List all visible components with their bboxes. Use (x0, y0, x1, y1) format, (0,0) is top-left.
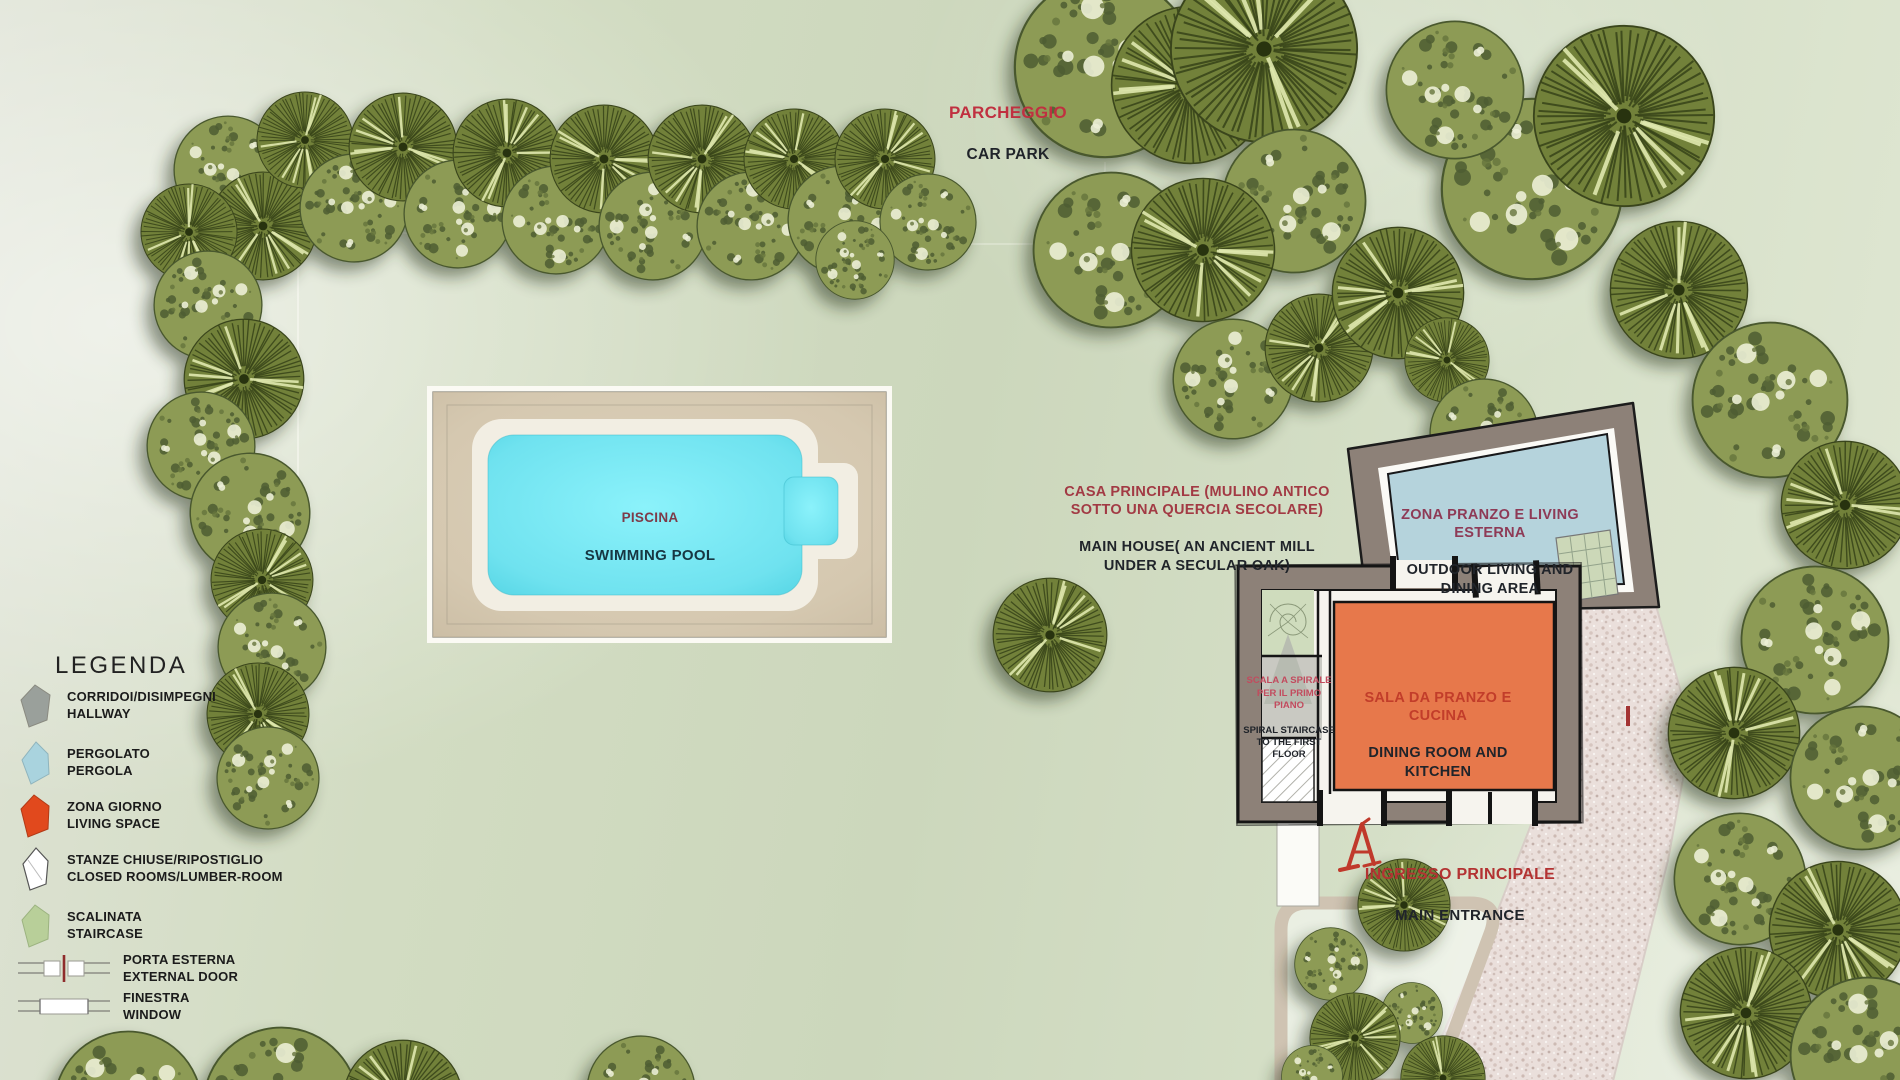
site-plan: PARCHEGGIO CAR PARK PISCINA SWIMMING POO… (0, 0, 1900, 1080)
label-sala-it: SALA DA PRANZO E CUCINA (1364, 689, 1511, 726)
legend-window-it: FINESTRA (123, 990, 190, 1007)
legend-window-en: WINDOW (123, 1007, 190, 1024)
label-parcheggio: PARCHEGGIO CAR PARK (949, 80, 1067, 187)
legend-closed-en: CLOSED ROOMS/LUMBER-ROOM (67, 869, 283, 886)
pergola-swatch-icon (18, 740, 54, 786)
entrance-walkway (1277, 820, 1319, 906)
label-parcheggio-it: PARCHEGGIO (949, 102, 1067, 124)
red-tick-marker (1626, 706, 1630, 726)
label-sala-pranzo: SALA DA PRANZO E CUCINA DINING ROOM AND … (1364, 670, 1511, 800)
legend-door-en: EXTERNAL DOOR (123, 969, 238, 986)
external-door-symbol-icon (18, 954, 110, 984)
label-zona-pranzo: ZONA PRANZO E LIVING ESTERNA OUTDOOR LIV… (1401, 487, 1579, 617)
legend-item-hallway: CORRIDOI/DISIMPEGNIHALLWAY (18, 683, 216, 729)
label-casa-it: CASA PRINCIPALE (MULINO ANTICO SOTTO UNA… (1064, 483, 1329, 520)
window-symbol-icon (18, 992, 110, 1022)
hallway-swatch-icon (18, 683, 54, 729)
legend-pergola-it: PERGOLATO (67, 746, 150, 763)
legend-living-it: ZONA GIORNO (67, 799, 162, 816)
closed-rooms-swatch-icon (18, 846, 54, 892)
legend-item-external-door: PORTA ESTERNAEXTERNAL DOOR (18, 952, 238, 986)
label-parcheggio-en: CAR PARK (949, 145, 1067, 165)
label-ingresso-it: INGRESSO PRINCIPALE (1365, 865, 1555, 885)
legend-item-closed-rooms: STANZE CHIUSE/RIPOSTIGLIOCLOSED ROOMS/LU… (18, 846, 283, 892)
legend-door-it: PORTA ESTERNA (123, 952, 238, 969)
label-zona-pranzo-en: OUTDOOR LIVING AND DINING AREA (1401, 561, 1579, 598)
label-scala-spirale: SCALA A SPIRALE PER IL PRIMO PIANO SPIRA… (1243, 663, 1335, 774)
legend-staircase-it: SCALINATA (67, 909, 143, 926)
label-casa-principale: CASA PRINCIPALE (MULINO ANTICO SOTTO UNA… (1064, 464, 1329, 594)
legend-pergola-en: PERGOLA (67, 763, 150, 780)
legend-title: LEGENDA (55, 652, 187, 680)
legend-closed-it: STANZE CHIUSE/RIPOSTIGLIO (67, 852, 283, 869)
label-scala-en: SPIRAL STAIRCASE TO THE FIRST FLOOR (1243, 725, 1335, 762)
label-casa-en: MAIN HOUSE( AN ANCIENT MILL UNDER A SECU… (1064, 538, 1329, 575)
label-piscina-en: SWIMMING POOL (585, 546, 716, 565)
legend-item-pergola: PERGOLATOPERGOLA (18, 740, 150, 786)
legend-living-en: LIVING SPACE (67, 816, 162, 833)
legend-item-staircase: SCALINATASTAIRCASE (18, 903, 143, 949)
legend-hallway-en: HALLWAY (67, 706, 216, 723)
legend-item-window: FINESTRAWINDOW (18, 990, 190, 1024)
legend-hallway-it: CORRIDOI/DISIMPEGNI (67, 689, 216, 706)
label-piscina-it: PISCINA (585, 509, 716, 526)
staircase-swatch-icon (18, 903, 54, 949)
legend-staircase-en: STAIRCASE (67, 926, 143, 943)
label-ingresso: INGRESSO PRINCIPALE MAIN ENTRANCE (1365, 845, 1555, 946)
label-sala-en: DINING ROOM AND KITCHEN (1364, 744, 1511, 781)
legend-item-living-space: ZONA GIORNOLIVING SPACE (18, 793, 162, 839)
tree-icon (574, 1023, 709, 1080)
living-space-swatch-icon (18, 793, 54, 839)
label-ingresso-en: MAIN ENTRANCE (1365, 906, 1555, 925)
label-scala-it: SCALA A SPIRALE PER IL PRIMO PIANO (1243, 675, 1335, 712)
label-zona-pranzo-it: ZONA PRANZO E LIVING ESTERNA (1401, 506, 1579, 543)
label-piscina: PISCINA SWIMMING POOL (585, 490, 716, 584)
